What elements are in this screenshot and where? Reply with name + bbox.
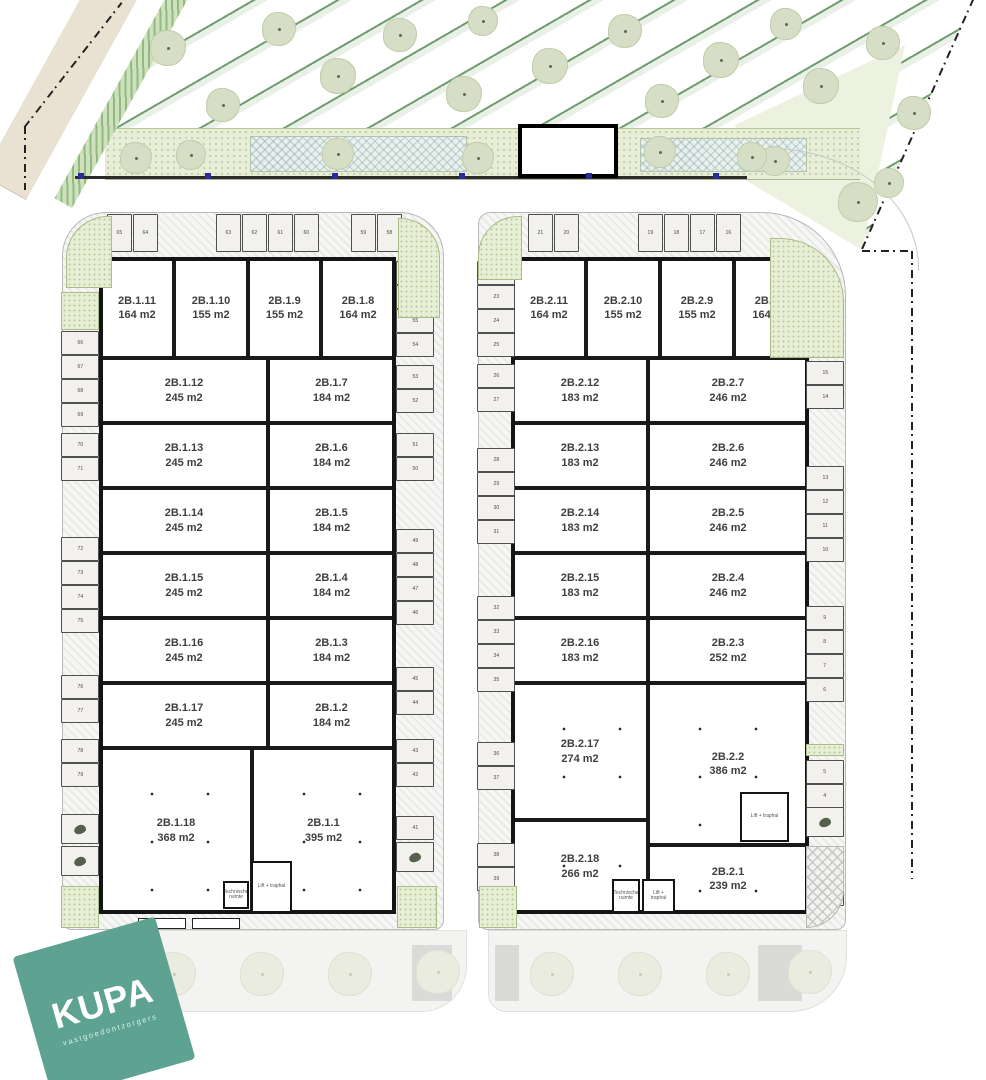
- building-1: 2B.1.11164 m22B.1.10155 m22B.1.9155 m22B…: [100, 258, 395, 913]
- unit-area: 246 m2: [709, 586, 746, 600]
- service-room: Lift + traphal: [740, 792, 789, 842]
- fence-post: [205, 173, 211, 179]
- pavement-block: [495, 945, 519, 1001]
- tree-icon: [530, 952, 574, 996]
- parking-number: 10: [822, 547, 828, 552]
- parking-number: 45: [412, 676, 418, 681]
- parking-stall: 15: [806, 361, 844, 385]
- parking-stall: 34: [477, 644, 515, 668]
- parking-stall: 45: [396, 667, 434, 691]
- unit-name: 2B.1.13: [165, 441, 204, 455]
- parking-stall: 5: [806, 760, 844, 784]
- unit-name: 2B.2.5: [712, 506, 744, 520]
- shrub-icon: [818, 816, 832, 827]
- unit-room: 2B.2.17274 m2: [512, 683, 648, 820]
- parking-number: 19: [648, 230, 654, 235]
- parking-number: 69: [77, 412, 83, 417]
- unit-name: 2B.1.8: [342, 294, 374, 308]
- pond-strip: [250, 136, 467, 172]
- unit-name: 2B.2.3: [712, 636, 744, 650]
- parking-stall: 35: [477, 668, 515, 692]
- service-room-label: Technische ruimte: [614, 891, 639, 902]
- parking-number: 49: [412, 538, 418, 543]
- parking-stall: 53: [396, 365, 434, 389]
- parking-number: 43: [412, 748, 418, 753]
- parking-number: 35: [493, 677, 499, 682]
- parking-stall: 46: [396, 601, 434, 625]
- tree-icon: [468, 6, 498, 36]
- parking-stall: 50: [396, 457, 434, 481]
- parking-number: 39: [493, 876, 499, 881]
- parking-number: 12: [822, 499, 828, 504]
- unit-room: 2B.1.12245 m2: [100, 358, 268, 423]
- site-plan-canvas: 2B.1.11164 m22B.1.10155 m22B.1.9155 m22B…: [0, 0, 986, 1080]
- tree-icon: [240, 952, 284, 996]
- unit-area: 184 m2: [313, 456, 350, 470]
- unit-room: 2B.1.6184 m2: [268, 423, 395, 488]
- tree-icon: [866, 26, 900, 60]
- parking-number: 5: [824, 769, 827, 774]
- parking-stall: 38: [477, 843, 515, 867]
- unit-area: 184 m2: [313, 521, 350, 535]
- parking-stall: 25: [477, 333, 515, 357]
- parking-number: 32: [493, 605, 499, 610]
- tree-icon: [770, 8, 802, 40]
- unit-room: 2B.2.16183 m2: [512, 618, 648, 683]
- tree-icon: [320, 58, 356, 94]
- parking-number: 27: [493, 397, 499, 402]
- unit-area: 164 m2: [530, 308, 567, 322]
- shrub-icon: [73, 823, 87, 834]
- parking-number: 60: [304, 230, 310, 235]
- unit-area: 246 m2: [709, 456, 746, 470]
- fence-post: [586, 173, 592, 179]
- parking-number: 11: [822, 523, 827, 528]
- unit-name: 2B.2.7: [712, 376, 744, 390]
- parking-stall: 69: [61, 403, 99, 427]
- parking-number: 67: [77, 364, 83, 369]
- unit-name: 2B.1.1: [307, 816, 339, 830]
- unit-area: 183 m2: [561, 651, 598, 665]
- parking-stall: 51: [396, 433, 434, 457]
- parking-number: 13: [822, 475, 828, 480]
- parking-stall: 77: [61, 699, 99, 723]
- tree-icon: [206, 88, 240, 122]
- unit-name: 2B.1.17: [165, 701, 204, 715]
- unit-area: 155 m2: [192, 308, 229, 322]
- parking-stall: 43: [396, 739, 434, 763]
- unit-name: 2B.1.18: [157, 816, 196, 830]
- unit-area: 183 m2: [561, 391, 598, 405]
- parking-number: 41: [412, 825, 418, 830]
- parking-stall: 10: [806, 538, 844, 562]
- unit-name: 2B.1.5: [315, 506, 347, 520]
- parking-stall: 29: [477, 472, 515, 496]
- unit-area: 246 m2: [709, 391, 746, 405]
- parking-number: 78: [77, 748, 83, 753]
- parking-number: 66: [77, 340, 83, 345]
- parking-stall: 52: [396, 389, 434, 413]
- unit-name: 2B.2.14: [561, 506, 600, 520]
- parking-number: 61: [278, 230, 284, 235]
- tree-icon: [120, 142, 152, 174]
- boundary-line: [911, 251, 913, 879]
- parking-stall: 24: [477, 309, 515, 333]
- parking-stall: 54: [396, 333, 434, 357]
- planter: [61, 292, 99, 330]
- service-room-label: Lift + traphal: [258, 884, 286, 890]
- unit-room: 2B.1.9155 m2: [248, 258, 321, 358]
- parking-number: 48: [412, 562, 418, 567]
- parking-stall: 49: [396, 529, 434, 553]
- parking-stall: 61: [268, 214, 293, 252]
- parking-stall: 18: [664, 214, 689, 252]
- planter: [806, 744, 844, 756]
- parking-number: 44: [412, 700, 418, 705]
- parking-stall: 36: [477, 742, 515, 766]
- fence-post: [713, 173, 719, 179]
- parking-number: 63: [226, 230, 232, 235]
- parking-stall: [61, 814, 99, 844]
- unit-area: 183 m2: [561, 456, 598, 470]
- unit-name: 2B.2.10: [604, 294, 643, 308]
- parking-number: 50: [412, 466, 418, 471]
- unit-room: 2B.2.11164 m2: [512, 258, 586, 358]
- planter: [61, 886, 99, 928]
- parking-number: 25: [493, 342, 499, 347]
- parking-stall: 47: [396, 577, 434, 601]
- unit-area: 184 m2: [313, 586, 350, 600]
- tree-icon: [608, 14, 642, 48]
- parking-number: 46: [412, 610, 418, 615]
- parking-number: 70: [77, 442, 83, 447]
- unit-area: 246 m2: [709, 521, 746, 535]
- parking-stall: 14: [806, 385, 844, 409]
- parking-stall: 64: [133, 214, 158, 252]
- parking-number: 59: [361, 230, 367, 235]
- parking-number: 37: [493, 775, 499, 780]
- parking-stall: 60: [294, 214, 319, 252]
- tree-icon: [838, 182, 878, 222]
- unit-name: 2B.2.1: [712, 865, 744, 879]
- parking-number: 16: [726, 230, 732, 235]
- unit-area: 395 m2: [305, 831, 342, 845]
- parking-stall: 48: [396, 553, 434, 577]
- tree-icon: [645, 84, 679, 118]
- unit-name: 2B.1.6: [315, 441, 347, 455]
- unit-area: 239 m2: [709, 879, 746, 893]
- parking-number: 36: [493, 751, 499, 756]
- parking-stall: 68: [61, 379, 99, 403]
- parking-number: 75: [77, 618, 83, 623]
- parking-number: 4: [824, 793, 827, 798]
- tree-icon: [176, 140, 206, 170]
- unit-area: 155 m2: [678, 308, 715, 322]
- unit-area: 274 m2: [561, 752, 598, 766]
- parking-stall: [396, 842, 434, 872]
- parking-number: 28: [493, 457, 499, 462]
- parking-number: 55: [412, 318, 418, 323]
- parking-number: 51: [412, 442, 418, 447]
- unit-name: 2B.1.14: [165, 506, 204, 520]
- unit-area: 386 m2: [709, 764, 746, 778]
- service-room: Technische ruimte: [223, 881, 249, 909]
- parking-stall: 73: [61, 561, 99, 585]
- unit-room: 2B.1.10155 m2: [174, 258, 248, 358]
- parking-stall: 6: [806, 678, 844, 702]
- unit-area: 368 m2: [157, 831, 194, 845]
- parking-stall: 42: [396, 763, 434, 787]
- parking-number: 29: [493, 481, 499, 486]
- unit-area: 155 m2: [266, 308, 303, 322]
- unit-room: 2B.2.12183 m2: [512, 358, 648, 423]
- unit-room: 2B.2.7246 m2: [648, 358, 808, 423]
- parking-stall: 33: [477, 620, 515, 644]
- parking-stall: 30: [477, 496, 515, 520]
- shrub-icon: [73, 855, 87, 866]
- parking-stall: 62: [242, 214, 267, 252]
- parking-stall: 11: [806, 514, 844, 538]
- unit-room: 2B.2.6246 m2: [648, 423, 808, 488]
- parking-number: 76: [77, 684, 83, 689]
- unit-name: 2B.2.6: [712, 441, 744, 455]
- parking-number: 72: [77, 546, 83, 551]
- parking-stall: [61, 846, 99, 876]
- tree-icon: [262, 12, 296, 46]
- parking-number: 18: [674, 230, 680, 235]
- parking-stall: 72: [61, 537, 99, 561]
- parking-number: 38: [493, 852, 499, 857]
- parking-number: 20: [564, 230, 570, 235]
- parking-stall: 19: [638, 214, 663, 252]
- parking-stall: 44: [396, 691, 434, 715]
- unit-name: 2B.2.15: [561, 571, 600, 585]
- parking-number: 47: [412, 586, 418, 591]
- unit-name: 2B.2.2: [712, 750, 744, 764]
- unit-area: 252 m2: [709, 651, 746, 665]
- fence-post: [459, 173, 465, 179]
- parking-number: 77: [77, 708, 83, 713]
- unit-area: 164 m2: [118, 308, 155, 322]
- tree-icon: [803, 68, 839, 104]
- unit-name: 2B.1.2: [315, 701, 347, 715]
- parking-stall: 9: [806, 606, 844, 630]
- parking-number: 79: [77, 772, 83, 777]
- unit-name: 2B.2.4: [712, 571, 744, 585]
- unit-name: 2B.2.12: [561, 376, 600, 390]
- unit-room: 2B.2.13183 m2: [512, 423, 648, 488]
- parking-number: 31: [493, 529, 499, 534]
- unit-name: 2B.1.12: [165, 376, 204, 390]
- parking-stall: 74: [61, 585, 99, 609]
- unit-room: 2B.1.16245 m2: [100, 618, 268, 683]
- tree-icon: [150, 30, 186, 66]
- service-room: Technische ruimte: [612, 879, 640, 913]
- parking-number: 24: [493, 318, 499, 323]
- tree-icon: [328, 952, 372, 996]
- parking-number: 64: [143, 230, 149, 235]
- parking-number: 62: [252, 230, 258, 235]
- utility-building: [518, 124, 618, 178]
- fence-line: [75, 176, 747, 179]
- parking-stall: 66: [61, 331, 99, 355]
- unit-area: 184 m2: [313, 391, 350, 405]
- parking-number: 42: [412, 772, 418, 777]
- parking-number: 9: [824, 615, 827, 620]
- parking-stall: 63: [216, 214, 241, 252]
- parking-stall: 76: [61, 675, 99, 699]
- parking-bumper: [192, 918, 240, 929]
- parking-number: 54: [412, 342, 418, 347]
- parking-stall: 78: [61, 739, 99, 763]
- unit-room: 2B.2.4246 m2: [648, 553, 808, 618]
- tree-icon: [446, 76, 482, 112]
- unit-name: 2B.2.17: [561, 737, 600, 751]
- service-room-label: Lift + traphal: [751, 814, 779, 820]
- parking-number: 30: [493, 505, 499, 510]
- parking-number: 34: [493, 653, 499, 658]
- tree-icon: [322, 138, 354, 170]
- parking-number: 52: [412, 398, 418, 403]
- unit-area: 183 m2: [561, 586, 598, 600]
- service-room-label: Technische ruimte: [224, 890, 249, 901]
- unit-name: 2B.1.9: [268, 294, 300, 308]
- boundary-line: [24, 126, 26, 190]
- unit-name: 2B.1.16: [165, 636, 204, 650]
- tree-icon: [706, 952, 750, 996]
- unit-room: 2B.1.17245 m2: [100, 683, 268, 748]
- unit-area: 245 m2: [165, 521, 202, 535]
- parking-stall: 13: [806, 466, 844, 490]
- unit-room: 2B.1.8164 m2: [321, 258, 395, 358]
- parking-number: 23: [493, 294, 499, 299]
- parking-number: 68: [77, 388, 83, 393]
- planter: [397, 886, 437, 928]
- planter: [479, 886, 517, 928]
- parking-number: 14: [822, 394, 828, 399]
- parking-stall: 37: [477, 766, 515, 790]
- parking-stall: 59: [351, 214, 376, 252]
- parking-stall: 20: [554, 214, 579, 252]
- unit-area: 184 m2: [313, 716, 350, 730]
- unit-room: 2B.1.7184 m2: [268, 358, 395, 423]
- unit-room: 2B.2.5246 m2: [648, 488, 808, 553]
- parking-stall: 28: [477, 448, 515, 472]
- parking-stall: 75: [61, 609, 99, 633]
- parking-stall: 23: [477, 285, 515, 309]
- shrub-icon: [408, 851, 422, 862]
- unit-room: 2B.2.3252 m2: [648, 618, 808, 683]
- unit-name: 2B.1.7: [315, 376, 347, 390]
- unit-area: 245 m2: [165, 586, 202, 600]
- unit-name: 2B.1.11: [118, 294, 156, 308]
- parking-number: 65: [117, 230, 123, 235]
- unit-name: 2B.2.11: [530, 294, 568, 308]
- unit-name: 2B.1.15: [165, 571, 204, 585]
- unit-area: 245 m2: [165, 651, 202, 665]
- boundary-line: [862, 250, 912, 252]
- parking-stall: 79: [61, 763, 99, 787]
- unit-name: 2B.1.10: [192, 294, 231, 308]
- unit-name: 2B.2.9: [681, 294, 713, 308]
- fence-post: [332, 173, 338, 179]
- unit-name: 2B.2.16: [561, 636, 600, 650]
- parking-stall: [806, 807, 844, 837]
- service-room: Lift + traphal: [642, 879, 675, 913]
- parking-stall: 7: [806, 654, 844, 678]
- parking-number: 33: [493, 629, 499, 634]
- unit-name: 2B.2.13: [561, 441, 600, 455]
- parking-number: 17: [700, 230, 706, 235]
- tree-icon: [788, 950, 832, 994]
- tree-icon: [737, 142, 767, 172]
- parking-stall: 27: [477, 388, 515, 412]
- parking-number: 26: [493, 373, 499, 378]
- unit-room: 2B.1.2184 m2: [268, 683, 395, 748]
- unit-room: 2B.1.5184 m2: [268, 488, 395, 553]
- unit-room: 2B.1.4184 m2: [268, 553, 395, 618]
- unit-room: 2B.1.15245 m2: [100, 553, 268, 618]
- parking-number: 21: [538, 230, 544, 235]
- parking-stall: 71: [61, 457, 99, 481]
- unit-room: 2B.1.14245 m2: [100, 488, 268, 553]
- parking-number: 71: [77, 466, 83, 471]
- unit-room: 2B.2.9155 m2: [660, 258, 734, 358]
- tree-icon: [703, 42, 739, 78]
- unit-area: 266 m2: [561, 867, 598, 881]
- parking-stall: 17: [690, 214, 715, 252]
- unit-room: 2B.1.13245 m2: [100, 423, 268, 488]
- parking-stall: 8: [806, 630, 844, 654]
- unit-name: 2B.1.3: [315, 636, 347, 650]
- unit-room: 2B.2.15183 m2: [512, 553, 648, 618]
- parking-number: 74: [77, 594, 83, 599]
- unit-area: 245 m2: [165, 391, 202, 405]
- parking-stall: 26: [477, 364, 515, 388]
- tree-icon: [874, 168, 904, 198]
- parking-number: 58: [387, 230, 393, 235]
- unit-area: 155 m2: [604, 308, 641, 322]
- parking-number: 6: [824, 687, 827, 692]
- tree-icon: [416, 950, 460, 994]
- parking-stall: 70: [61, 433, 99, 457]
- parking-stall: 67: [61, 355, 99, 379]
- tree-icon: [383, 18, 417, 52]
- parking-stall: 31: [477, 520, 515, 544]
- tree-icon: [462, 142, 494, 174]
- unit-room: 2B.2.14183 m2: [512, 488, 648, 553]
- parking-stall: 12: [806, 490, 844, 514]
- unit-name: 2B.2.18: [561, 852, 600, 866]
- unit-room: 2B.2.10155 m2: [586, 258, 660, 358]
- tree-icon: [897, 96, 931, 130]
- unit-area: 183 m2: [561, 521, 598, 535]
- unit-area: 184 m2: [313, 651, 350, 665]
- unit-area: 245 m2: [165, 456, 202, 470]
- parking-number: 15: [822, 370, 828, 375]
- fence-post: [78, 173, 84, 179]
- parking-number: 73: [77, 570, 83, 575]
- parking-stall: 4: [806, 784, 844, 808]
- parking-stall: 21: [528, 214, 553, 252]
- tree-icon: [644, 136, 676, 168]
- service-room: Lift + traphal: [251, 861, 292, 913]
- service-room-label: Lift + traphal: [645, 891, 672, 902]
- parking-number: 53: [412, 374, 418, 379]
- parking-stall: 16: [716, 214, 741, 252]
- parking-stall: 32: [477, 596, 515, 620]
- unit-name: 2B.1.4: [315, 571, 347, 585]
